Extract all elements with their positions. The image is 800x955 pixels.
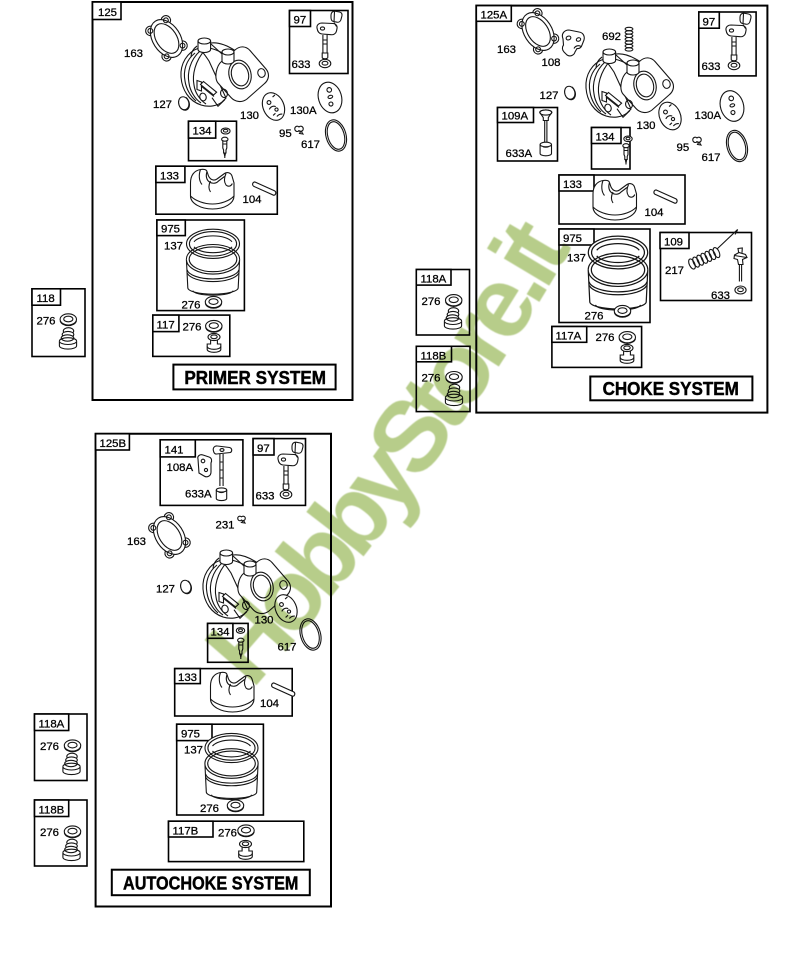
- svg-text:125B: 125B: [100, 438, 127, 450]
- svg-text:108: 108: [542, 57, 561, 69]
- svg-text:975: 975: [181, 729, 200, 741]
- svg-text:109: 109: [664, 237, 683, 249]
- svg-text:617: 617: [301, 139, 320, 151]
- svg-text:104: 104: [243, 194, 262, 206]
- svg-text:133: 133: [563, 179, 582, 191]
- svg-text:125A: 125A: [481, 10, 508, 22]
- svg-text:97: 97: [257, 443, 270, 455]
- svg-text:276: 276: [40, 827, 59, 839]
- svg-text:CHOKE SYSTEM: CHOKE SYSTEM: [603, 379, 739, 399]
- svg-text:127: 127: [156, 584, 175, 596]
- svg-text:117A: 117A: [556, 331, 582, 343]
- svg-text:163: 163: [124, 48, 143, 60]
- svg-text:95: 95: [677, 142, 690, 154]
- svg-text:134: 134: [596, 132, 615, 144]
- svg-text:276: 276: [40, 741, 59, 753]
- svg-text:692: 692: [602, 31, 621, 43]
- svg-text:141: 141: [165, 445, 184, 457]
- svg-text:125: 125: [98, 7, 117, 19]
- svg-text:975: 975: [563, 233, 582, 245]
- svg-text:133: 133: [160, 171, 179, 183]
- svg-text:617: 617: [702, 152, 721, 164]
- svg-text:276: 276: [218, 828, 237, 840]
- svg-text:118B: 118B: [39, 805, 65, 817]
- svg-text:95: 95: [279, 128, 292, 140]
- svg-text:163: 163: [127, 536, 146, 548]
- svg-text:276: 276: [585, 311, 604, 323]
- svg-text:276: 276: [37, 316, 56, 328]
- svg-text:633A: 633A: [506, 148, 533, 160]
- svg-text:633: 633: [256, 491, 275, 503]
- svg-text:633A: 633A: [185, 489, 212, 501]
- svg-text:104: 104: [645, 207, 664, 219]
- svg-text:975: 975: [161, 224, 180, 236]
- svg-text:276: 276: [182, 300, 201, 312]
- svg-text:130A: 130A: [695, 110, 722, 122]
- svg-text:137: 137: [164, 241, 183, 253]
- svg-text:130: 130: [240, 110, 259, 122]
- svg-text:633: 633: [702, 61, 721, 73]
- svg-text:163: 163: [497, 44, 516, 56]
- svg-text:130A: 130A: [290, 105, 317, 117]
- svg-text:633: 633: [711, 290, 730, 302]
- svg-text:118A: 118A: [39, 719, 65, 731]
- svg-text:109A: 109A: [502, 111, 529, 123]
- svg-text:217: 217: [665, 265, 684, 277]
- svg-text:117: 117: [157, 320, 175, 332]
- svg-text:127: 127: [153, 99, 172, 111]
- svg-text:AUTOCHOKE SYSTEM: AUTOCHOKE SYSTEM: [123, 874, 298, 894]
- svg-text:276: 276: [596, 332, 615, 344]
- svg-text:PRIMER SYSTEM: PRIMER SYSTEM: [184, 368, 326, 388]
- svg-text:231: 231: [216, 520, 235, 532]
- svg-text:633: 633: [292, 59, 311, 71]
- svg-text:276: 276: [183, 322, 202, 334]
- svg-text:276: 276: [200, 803, 219, 815]
- svg-text:118A: 118A: [421, 274, 447, 286]
- svg-text:117B: 117B: [173, 826, 199, 838]
- svg-text:97: 97: [294, 15, 307, 27]
- svg-text:130: 130: [637, 120, 656, 132]
- svg-text:127: 127: [540, 90, 559, 102]
- svg-text:134: 134: [193, 126, 212, 138]
- svg-text:118: 118: [37, 293, 55, 305]
- svg-text:97: 97: [703, 17, 716, 29]
- svg-text:133: 133: [178, 672, 197, 684]
- svg-text:108A: 108A: [167, 462, 194, 474]
- svg-text:137: 137: [184, 745, 203, 757]
